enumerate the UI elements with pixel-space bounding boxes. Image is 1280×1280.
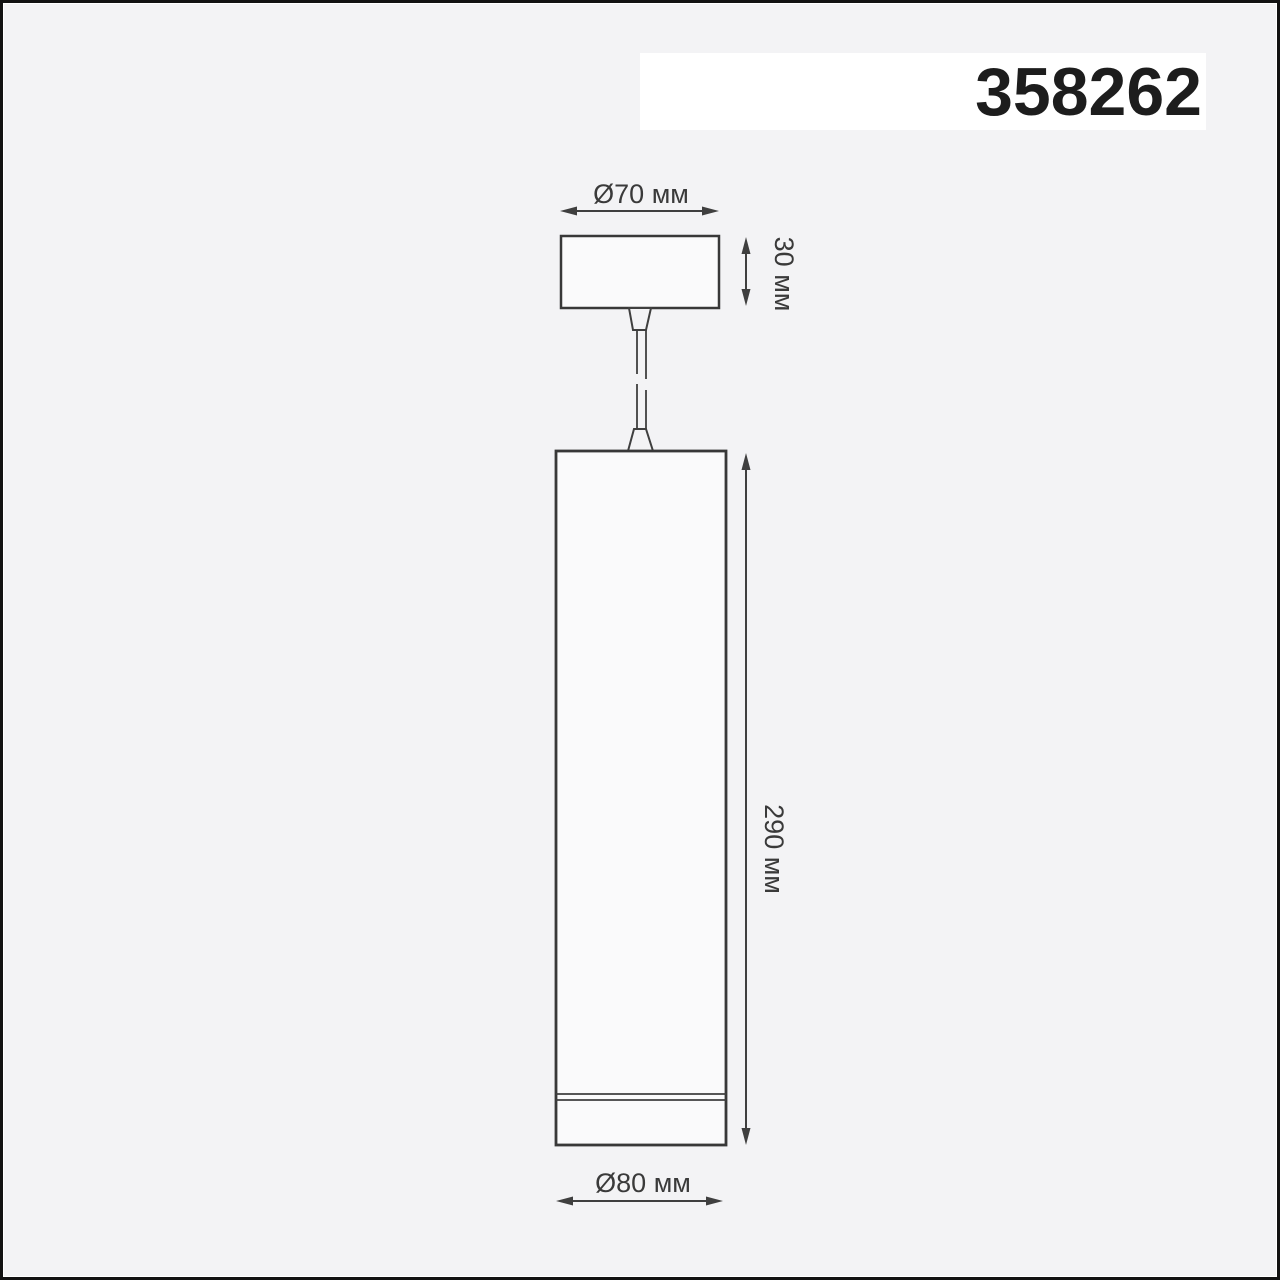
cord-grip-upper-outline	[629, 308, 651, 330]
body-diameter-arrow-left-icon	[556, 1197, 573, 1206]
product-diagram-canvas: 358262 Ø70 мм 30 мм 290 мм Ø	[0, 0, 1280, 1280]
lamp-body-outline	[556, 451, 726, 1145]
canopy-diameter-label: Ø70 мм	[593, 179, 689, 209]
body-diameter-arrow-right-icon	[706, 1197, 723, 1206]
body-height-arrow-down-icon	[742, 1128, 751, 1145]
cord-grip-lower-outline	[628, 429, 653, 451]
body-diameter-label: Ø80 мм	[595, 1168, 691, 1198]
dimension-drawing: Ø70 мм 30 мм 290 мм Ø80 мм	[3, 3, 1277, 1277]
body-height-arrow-up-icon	[742, 453, 751, 470]
canopy-height-arrow-up-icon	[742, 237, 751, 254]
canopy-height-label: 30 мм	[769, 237, 799, 312]
body-height-label: 290 мм	[759, 804, 789, 894]
canopy-height-arrow-down-icon	[742, 289, 751, 306]
ceiling-canopy-outline	[561, 236, 719, 308]
canopy-diameter-arrow-left-icon	[560, 207, 577, 216]
canopy-diameter-arrow-right-icon	[702, 207, 719, 216]
